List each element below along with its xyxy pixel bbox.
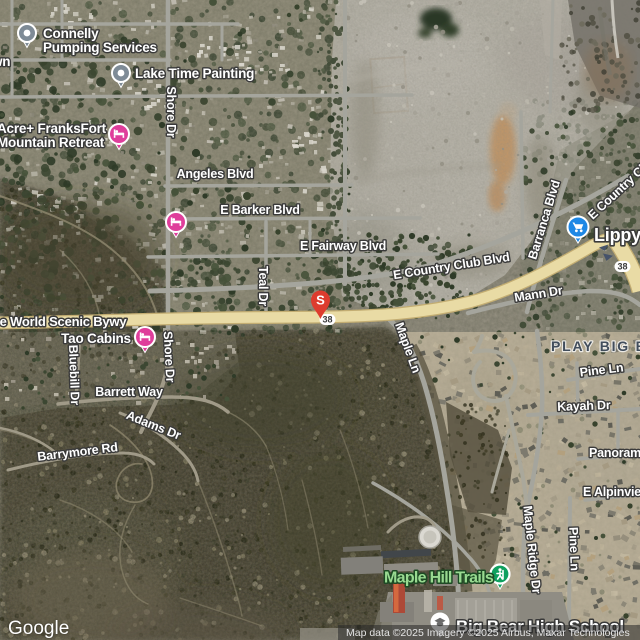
svg-text:Maple Hill Trails: Maple Hill Trails [384,570,494,587]
svg-text:Map data ©2025 Imagery ©2025 A: Map data ©2025 Imagery ©2025 Airbus, Max… [346,627,630,639]
svg-text:Pine Ln: Pine Ln [566,527,582,571]
svg-text:e World Scenic Bywy: e World Scenic Bywy [0,314,127,329]
svg-text:Shore Dr: Shore Dr [164,86,178,138]
svg-text:Panorama: Panorama [589,446,640,460]
svg-text:E Fairway Blvd: E Fairway Blvd [300,239,386,253]
svg-text:E Barker Blvd: E Barker Blvd [220,203,299,217]
svg-text:Lake Time Painting: Lake Time Painting [135,66,254,81]
svg-text:S: S [316,293,325,308]
svg-text:38: 38 [322,315,332,325]
svg-text:Barrett Way: Barrett Way [95,385,163,399]
svg-text:Connelly: Connelly [43,26,99,41]
svg-text:Shore Dr: Shore Dr [161,331,178,383]
svg-text:Pumping Services: Pumping Services [43,40,157,55]
svg-text:wn: wn [0,54,10,69]
svg-text:Teal Dr: Teal Dr [256,266,270,306]
svg-text:Bluebill Dr: Bluebill Dr [66,344,82,405]
svg-text:38: 38 [617,262,627,272]
svg-text:Google: Google [8,618,69,639]
svg-text:Lippy's: Lippy's [594,225,640,245]
svg-text:E Alpinview: E Alpinview [583,485,640,499]
svg-text:Mountain Retreat: Mountain Retreat [0,135,105,150]
svg-text:Tao Cabins: Tao Cabins [61,331,131,346]
svg-text:PLAY BIG BEAR: PLAY BIG BEAR [551,338,640,354]
svg-text:Kayah Dr: Kayah Dr [557,398,611,414]
svg-text:Acre+ FranksFort: Acre+ FranksFort [0,121,107,136]
svg-text:Angeles Blvd: Angeles Blvd [177,167,254,181]
